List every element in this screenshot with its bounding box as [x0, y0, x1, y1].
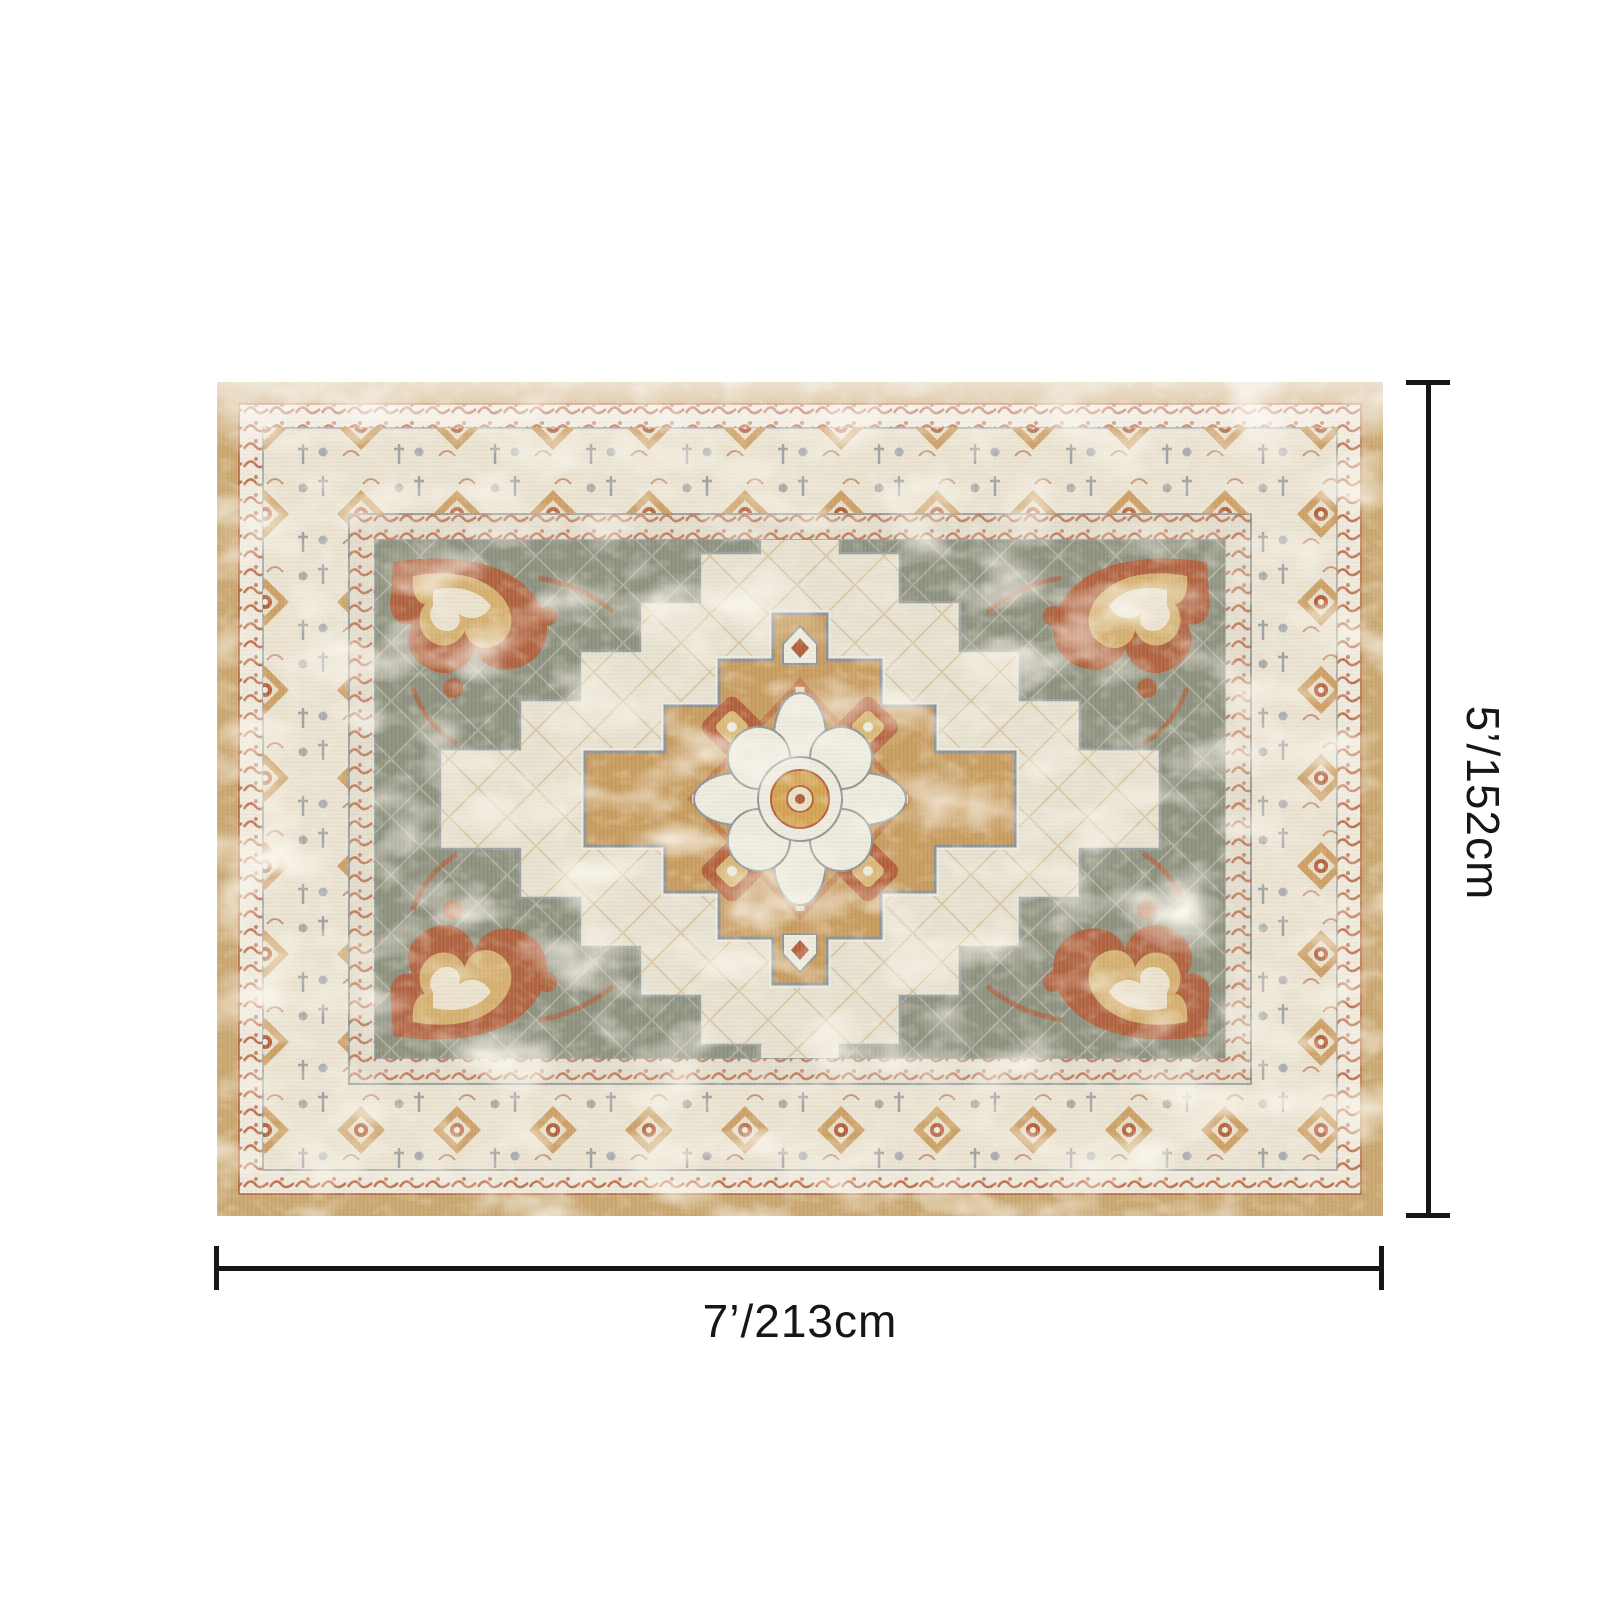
rug-distress-overlay — [217, 382, 1383, 1216]
rug-image — [217, 382, 1383, 1216]
width-dimension-label: 7’/213cm — [216, 1294, 1384, 1348]
height-dimension-label: 5’/152cm — [1459, 643, 1507, 963]
width-dimension-cap-right — [1379, 1246, 1384, 1290]
height-dimension-cap-bottom — [1406, 1213, 1450, 1218]
width-dimension-line — [214, 1266, 1384, 1271]
height-dimension-line — [1426, 380, 1431, 1218]
product-dimension-image: 5’/152cm 7’/213cm — [0, 0, 1600, 1600]
